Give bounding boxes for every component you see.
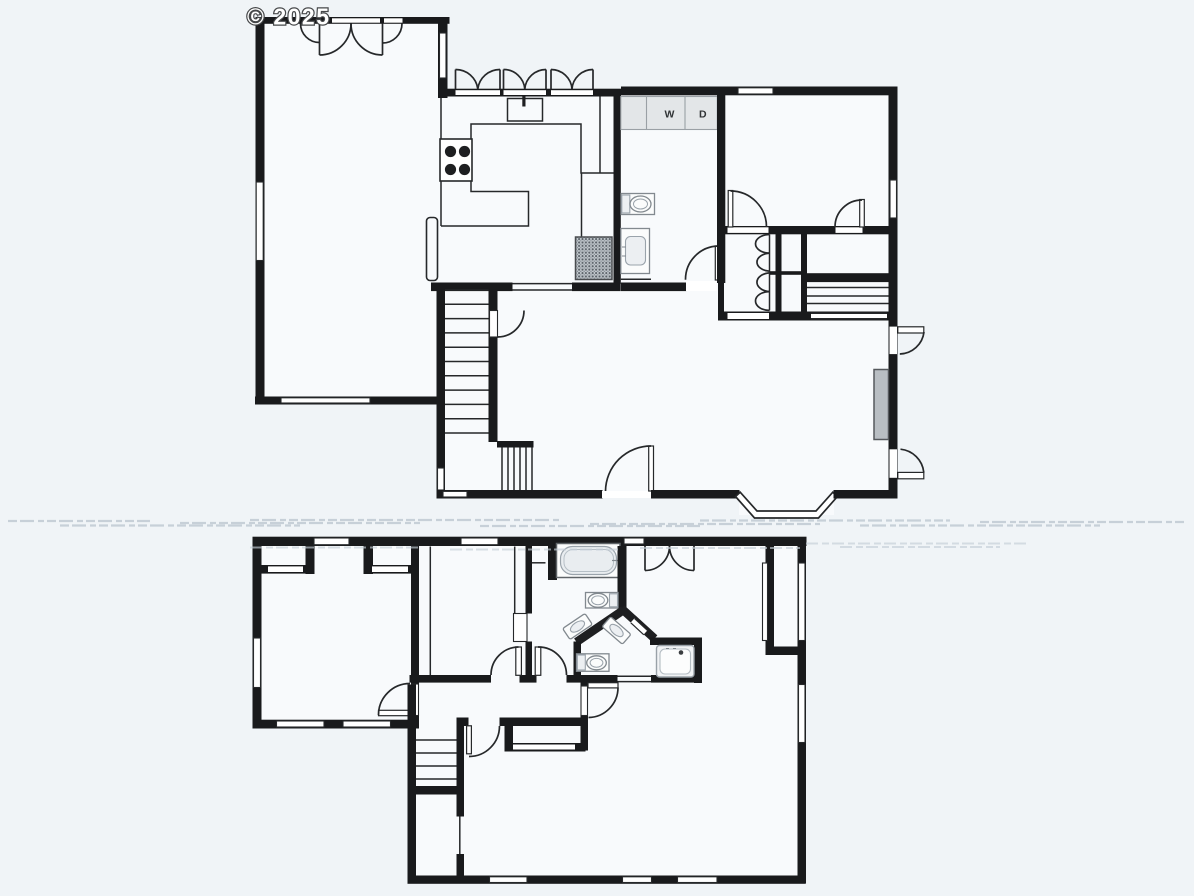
svg-text:D: D: [699, 109, 707, 121]
svg-text:© 2025: © 2025: [247, 4, 331, 30]
svg-text:W: W: [665, 109, 675, 121]
